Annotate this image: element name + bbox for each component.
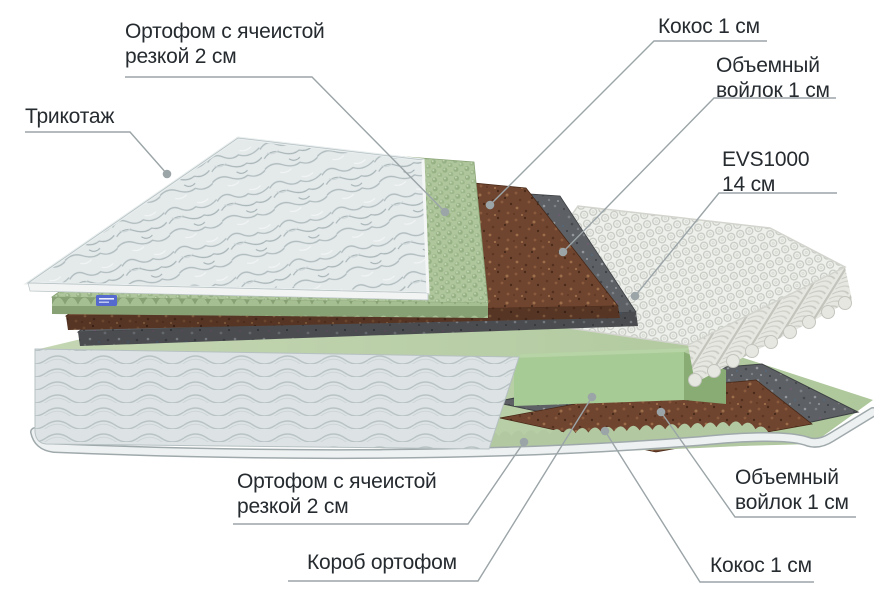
label-coconut-bottom: Кокос 1 см — [710, 553, 812, 578]
label-coconut-top: Кокос 1 см — [658, 14, 760, 39]
label-knit-cover: Трикотаж — [25, 104, 114, 129]
label-felt-bottom: Объемный войлок 1 см — [735, 465, 849, 515]
label-ortofoam-bottom: Ортофом с ячеистой резкой 2 см — [237, 469, 437, 519]
label-ortofoam-top: Ортофом с ячеистой резкой 2 см — [125, 19, 325, 69]
mattress-front-fabric — [35, 349, 519, 449]
label-felt-top: Объемный войлок 1 см — [716, 53, 830, 103]
label-foam-box: Короб ортофом — [307, 550, 457, 575]
label-springs-block: EVS1000 14 см — [722, 147, 809, 197]
quilted-cover-layer — [28, 138, 428, 300]
mattress-diagram: Ортофом с ячеистой резкой 2 см Трикотаж … — [0, 0, 874, 599]
brand-tag — [96, 295, 117, 306]
